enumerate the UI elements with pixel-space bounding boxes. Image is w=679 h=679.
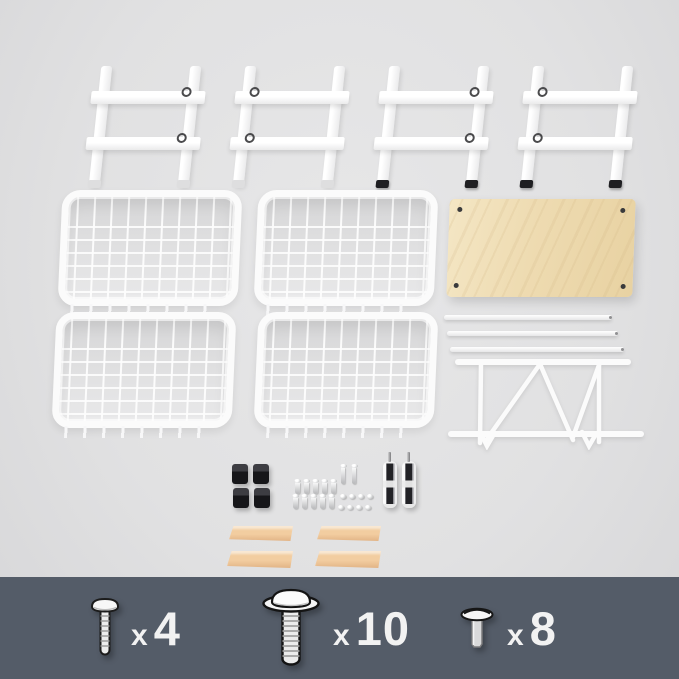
frame-leg (377, 66, 401, 186)
small-screw (302, 497, 307, 509)
long-screw (352, 467, 356, 484)
truss-head-screw-icon (458, 606, 496, 650)
hook-screw-icon (244, 133, 255, 143)
screw-hole (621, 284, 626, 289)
small-screw (320, 497, 325, 509)
black-foot-cap (233, 488, 249, 508)
dome-screw (347, 505, 353, 510)
wire-basket-3 (51, 312, 236, 428)
count-value: 8 (530, 605, 557, 652)
screw-count-label: x 4 (131, 605, 181, 652)
hook-screw-icon (537, 87, 548, 97)
small-screw (304, 482, 309, 494)
product-parts-photo: x 4 x 10 (0, 0, 679, 679)
banner-item-pan-head-screw: x 4 (90, 577, 181, 679)
dome-screw (340, 494, 346, 499)
hook-screw-icon (532, 133, 543, 143)
side-frame-3 (372, 66, 495, 186)
screw-hole (620, 208, 625, 213)
metal-clamp (383, 461, 397, 508)
support-rod-1 (444, 315, 612, 320)
frame-foot-cap (608, 180, 622, 188)
frame-leg (178, 66, 202, 186)
wire-basket-1 (57, 190, 242, 306)
flange-head-screw-icon (260, 587, 322, 669)
screw-hole (457, 207, 462, 212)
hardware-count-banner: x 4 x 10 (0, 577, 679, 679)
banner-item-truss-head-screw: x 8 (458, 577, 557, 679)
frame-foot (231, 180, 245, 188)
frame-foot-cap (464, 180, 478, 188)
frame-crossbar (517, 137, 632, 150)
screw-count-label: x 10 (333, 605, 410, 652)
wood-top-shelf (446, 199, 635, 297)
small-screw (331, 482, 336, 494)
dome-screw (358, 494, 364, 499)
dome-screw (356, 505, 362, 510)
screw-count-label: x 8 (507, 605, 557, 652)
dome-screw (365, 505, 371, 510)
frame-crossbar (373, 137, 488, 150)
frame-crossbar (85, 137, 200, 150)
side-frame-1 (84, 66, 207, 186)
screw-hole (454, 283, 459, 288)
long-screw (341, 467, 345, 484)
black-foot-cap (232, 464, 248, 484)
side-frame-2 (228, 66, 351, 186)
small-screw (329, 497, 334, 509)
dome-screw (367, 494, 373, 499)
frame-leg (233, 66, 257, 186)
count-value: 10 (356, 605, 410, 652)
times-symbol: x (507, 621, 524, 651)
wood-handle-strip (227, 551, 293, 568)
dome-screw (349, 494, 355, 499)
hook-screw-icon (249, 87, 260, 97)
frame-foot-cap (519, 180, 533, 188)
small-screw (295, 482, 300, 494)
frame-crossbar (229, 137, 344, 150)
banner-item-flange-head-screw: x 10 (260, 577, 410, 679)
wood-handle-strip (229, 526, 293, 541)
wood-handle-strip (317, 526, 381, 541)
hook-screw-icon (464, 133, 475, 143)
support-rod-2 (447, 331, 618, 336)
hook-screw-icon (469, 87, 480, 97)
black-foot-cap (254, 488, 270, 508)
support-rod-3 (450, 347, 624, 352)
times-symbol: x (333, 621, 350, 651)
wire-basket-2 (253, 190, 438, 306)
hook-screw-icon (176, 133, 187, 143)
frame-leg (610, 66, 634, 186)
frame-leg (521, 66, 545, 186)
frame-crossbar (522, 91, 637, 104)
small-screw (313, 482, 318, 494)
side-frame-4 (516, 66, 639, 186)
frame-foot (87, 180, 101, 188)
count-value: 4 (154, 605, 181, 652)
small-screw (293, 497, 298, 509)
wire-basket-4 (253, 312, 438, 428)
frame-foot (176, 180, 190, 188)
dome-screw (338, 505, 344, 510)
hook-screw-icon (181, 87, 192, 97)
wire-shelf-bracket (448, 355, 648, 450)
frame-foot (320, 180, 334, 188)
metal-clamp (402, 461, 416, 508)
frame-crossbar (90, 91, 205, 104)
frame-crossbar (234, 91, 349, 104)
small-screw (322, 482, 327, 494)
times-symbol: x (131, 621, 148, 651)
frame-leg (466, 66, 490, 186)
frame-foot-cap (375, 180, 389, 188)
black-foot-cap (253, 464, 269, 484)
small-screw (311, 497, 316, 509)
frame-leg (89, 66, 113, 186)
pan-head-screw-icon (90, 597, 120, 659)
frame-leg (322, 66, 346, 186)
wood-handle-strip (315, 551, 381, 568)
frame-crossbar (378, 91, 493, 104)
